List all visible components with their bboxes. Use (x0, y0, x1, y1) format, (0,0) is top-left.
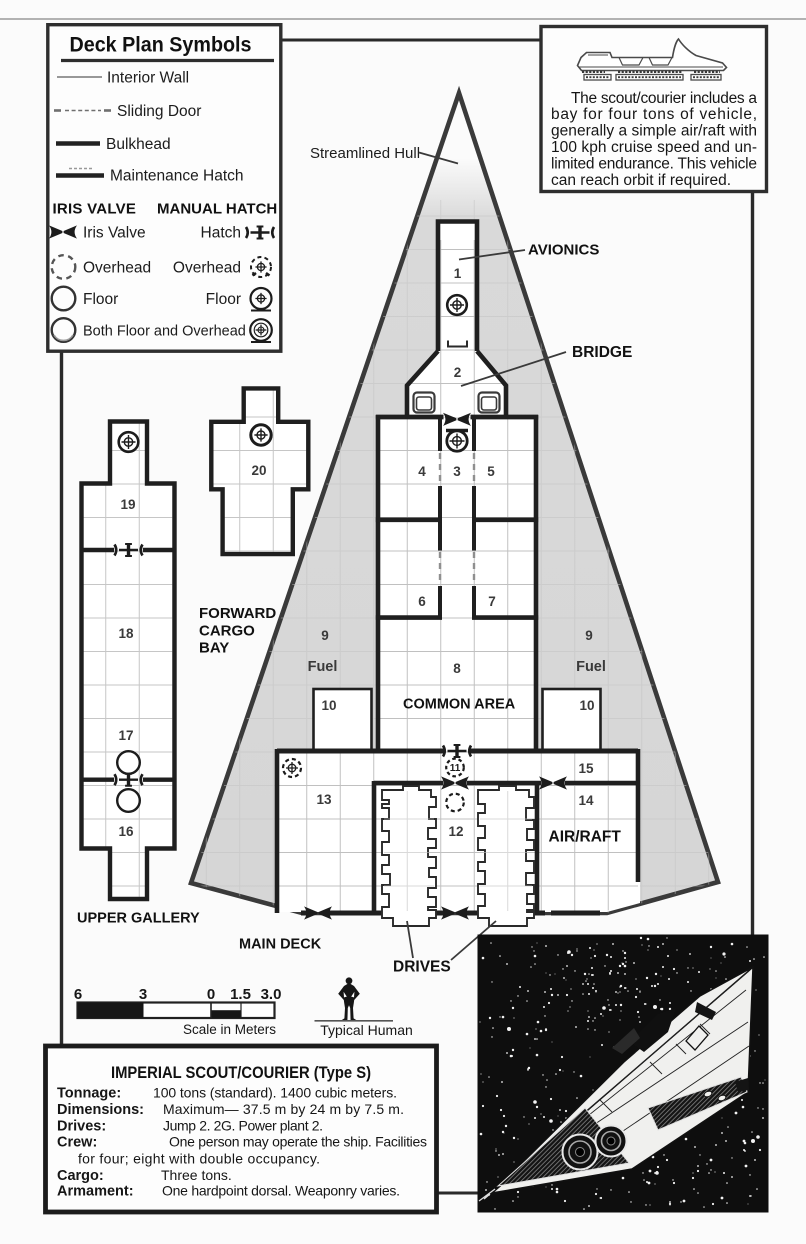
svg-text:COMMON AREA: COMMON AREA (403, 697, 516, 713)
svg-text:Armament:: Armament: (57, 1184, 134, 1200)
svg-text:Three tons.: Three tons. (161, 1167, 232, 1183)
svg-text:13: 13 (316, 792, 332, 807)
svg-text:14: 14 (578, 793, 594, 808)
svg-text:for four; eight with double oc: for four; eight with double occupancy. (78, 1150, 320, 1166)
svg-text:IRIS VALVE: IRIS VALVE (53, 201, 137, 218)
svg-text:AVIONICS: AVIONICS (528, 242, 599, 259)
svg-text:bay for four tons of vehicle,: bay for four tons of vehicle, (551, 106, 757, 123)
svg-text:The scout/courier includes a: The scout/courier includes a (571, 90, 757, 107)
svg-text:Maximum— 37.5 m by 24 m by 7.5: Maximum— 37.5 m by 24 m by 7.5 m. (163, 1101, 404, 1117)
svg-text:3: 3 (453, 464, 461, 479)
svg-text:Maintenance Hatch: Maintenance Hatch (110, 168, 244, 185)
svg-text:Bulkhead: Bulkhead (106, 136, 171, 153)
svg-text:Overhead: Overhead (173, 260, 241, 277)
svg-text:6: 6 (74, 986, 82, 1003)
svg-text:Both Floor and Overhead: Both Floor and Overhead (83, 324, 246, 340)
svg-text:MANUAL HATCH: MANUAL HATCH (157, 201, 277, 218)
svg-text:100 kph cruise speed and un-: 100 kph cruise speed and un- (551, 139, 757, 156)
svg-text:17: 17 (118, 728, 133, 743)
svg-text:MAIN DECK: MAIN DECK (239, 937, 322, 953)
svg-text:100 tons (standard). 1400 cub: 100 tons (standard). 1400 cubic meters. (153, 1085, 397, 1101)
svg-text:Cargo:: Cargo: (57, 1168, 104, 1184)
svg-text:Sliding Door: Sliding Door (117, 103, 201, 120)
svg-text:7: 7 (488, 594, 496, 609)
svg-text:3: 3 (139, 986, 147, 1003)
svg-text:Tonnage:: Tonnage: (57, 1086, 121, 1102)
svg-text:15: 15 (578, 761, 594, 776)
svg-text:2: 2 (454, 365, 462, 380)
svg-text:Iris Valve: Iris Valve (83, 225, 146, 242)
svg-text:19: 19 (120, 497, 135, 512)
svg-text:Interior Wall: Interior Wall (107, 70, 189, 87)
svg-text:9: 9 (585, 628, 593, 643)
svg-text:4: 4 (418, 464, 426, 479)
svg-text:6: 6 (418, 594, 426, 609)
svg-text:12: 12 (448, 824, 463, 839)
svg-text:20: 20 (251, 463, 266, 478)
svg-text:Fuel: Fuel (308, 659, 338, 675)
svg-text:generally a simple air/raft wi: generally a simple air/raft with (551, 123, 757, 140)
svg-text:10: 10 (321, 698, 336, 713)
svg-text:UPPER GALLERY: UPPER GALLERY (77, 911, 200, 927)
svg-text:One hardpoint dorsal. Weaponr: One hardpoint dorsal. Weaponry varies. (162, 1183, 400, 1199)
svg-text:limited endurance. This vehicl: limited endurance. This vehicle (551, 155, 757, 172)
svg-text:Scale in Meters: Scale in Meters (183, 1022, 276, 1037)
svg-text:Floor: Floor (206, 291, 241, 308)
svg-text:1: 1 (454, 266, 462, 281)
svg-text:3.0: 3.0 (261, 986, 282, 1003)
svg-text:16: 16 (118, 824, 134, 839)
svg-text:0: 0 (207, 986, 215, 1003)
svg-text:Deck Plan Symbols: Deck Plan Symbols (70, 33, 252, 57)
svg-text:Drives:: Drives: (57, 1118, 106, 1134)
svg-text:9: 9 (321, 628, 329, 643)
svg-text:1.5: 1.5 (230, 986, 251, 1003)
svg-text:Hatch: Hatch (201, 225, 242, 242)
svg-text:IMPERIAL SCOUT/COURIER (Type S: IMPERIAL SCOUT/COURIER (Type S) (111, 1064, 371, 1082)
svg-text:8: 8 (453, 661, 461, 676)
svg-text:Floor: Floor (83, 291, 118, 308)
svg-text:AIR/RAFT: AIR/RAFT (549, 829, 622, 846)
svg-text:BAY: BAY (199, 640, 229, 657)
svg-text:Fuel: Fuel (576, 659, 606, 675)
svg-text:FORWARD: FORWARD (199, 605, 276, 622)
svg-text:BRIDGE: BRIDGE (572, 344, 632, 361)
svg-text:5: 5 (487, 464, 495, 479)
svg-text:Streamlined Hull: Streamlined Hull (310, 145, 420, 162)
svg-text:CARGO: CARGO (199, 623, 255, 640)
svg-text:11: 11 (450, 763, 461, 774)
svg-text:Dimensions:: Dimensions: (57, 1102, 144, 1118)
svg-text:Overhead: Overhead (83, 260, 151, 277)
svg-text:DRIVES: DRIVES (393, 959, 451, 976)
svg-text:Typical Human: Typical Human (320, 1022, 413, 1038)
svg-text:can reach orbit if required.: can reach orbit if required. (551, 172, 731, 189)
svg-text:18: 18 (118, 626, 134, 641)
svg-text:Jump 2. 2G. Power plant 2.: Jump 2. 2G. Power plant 2. (163, 1117, 323, 1133)
svg-text:Crew:: Crew: (57, 1135, 97, 1151)
svg-text:One person may operate the shi: One person may operate the ship. Facilit… (169, 1134, 427, 1150)
svg-text:10: 10 (579, 698, 594, 713)
